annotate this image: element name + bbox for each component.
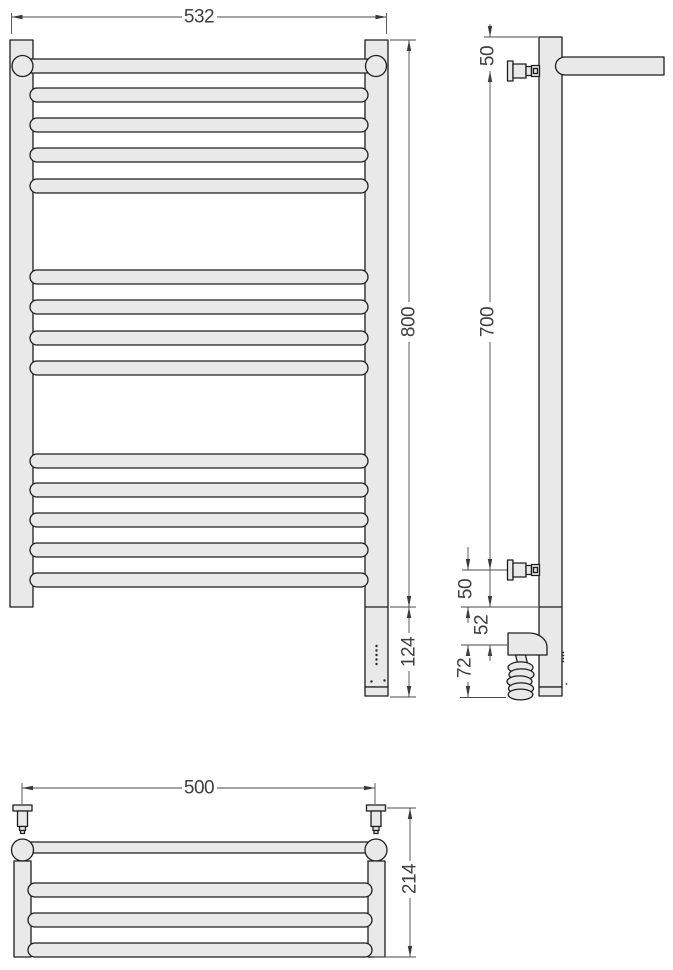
side-top-shelf-bar bbox=[556, 57, 664, 75]
bracket-wall-plate bbox=[508, 61, 514, 81]
heating-element-box bbox=[508, 633, 547, 655]
bracket-collar bbox=[532, 565, 540, 576]
arrowhead bbox=[22, 786, 33, 790]
top-tube bbox=[28, 883, 372, 897]
dim-label-heater-section: 124 bbox=[399, 636, 420, 667]
bracket-collar bbox=[532, 66, 540, 77]
arrowhead bbox=[488, 559, 492, 570]
arrowhead bbox=[408, 808, 412, 819]
front-view: 532 800 124 bbox=[10, 7, 420, 698]
side-post bbox=[539, 37, 562, 687]
top-right-post bbox=[368, 861, 385, 957]
front-right-post bbox=[365, 40, 388, 687]
front-top-bend-left bbox=[12, 56, 33, 77]
indicator-dot bbox=[383, 679, 385, 681]
dim-label-coupling: 52 bbox=[472, 615, 493, 635]
arrowhead bbox=[466, 559, 470, 570]
indicator-dot bbox=[562, 652, 564, 654]
dim-side-bottom-offset: 50 bbox=[456, 547, 539, 623]
top-bend-right bbox=[365, 839, 387, 861]
rung bbox=[30, 300, 368, 314]
arrowhead bbox=[466, 686, 470, 697]
dim-label-bracket-span: 700 bbox=[478, 307, 499, 337]
dim-front-width: 532 bbox=[12, 7, 387, 35]
rung bbox=[30, 331, 368, 345]
front-heater-end-cap bbox=[365, 687, 388, 696]
indicator-dot bbox=[375, 654, 377, 656]
indicator-dot bbox=[375, 649, 377, 651]
bracket-wall-plate bbox=[508, 560, 514, 580]
bracket-body bbox=[371, 811, 381, 827]
indicator-dot bbox=[562, 655, 564, 657]
indicator-dot bbox=[375, 663, 377, 665]
dim-label-heater-protrusion: 72 bbox=[455, 658, 476, 678]
dim-front-height: 800 bbox=[390, 40, 420, 607]
indicator-dot bbox=[370, 680, 372, 682]
rung bbox=[30, 513, 368, 527]
bracket-wall-plate bbox=[13, 805, 32, 811]
top-bend-left bbox=[12, 839, 34, 861]
arrowhead bbox=[407, 607, 411, 618]
arrowhead bbox=[407, 40, 411, 51]
towel-rail-drawing: 532 800 124 bbox=[0, 0, 673, 970]
wall-bracket-top bbox=[508, 61, 540, 81]
rung bbox=[30, 88, 368, 102]
dim-side-heater-protrusion: 72 bbox=[455, 645, 507, 698]
dim-label-height: 800 bbox=[399, 307, 420, 337]
spiral-cable bbox=[507, 662, 534, 700]
arrowhead bbox=[407, 686, 411, 697]
technical-drawing: 532 800 124 bbox=[0, 0, 673, 970]
dim-label-bottom-offset: 50 bbox=[456, 579, 477, 599]
dim-label-width: 532 bbox=[184, 7, 214, 28]
bracket-stem bbox=[374, 831, 378, 834]
indicator-dot bbox=[562, 658, 564, 660]
indicator-dot bbox=[566, 683, 568, 685]
cable-coil-loop bbox=[508, 689, 533, 700]
rung bbox=[30, 483, 368, 497]
arrowhead bbox=[408, 946, 412, 957]
dim-label-top-width: 500 bbox=[184, 778, 214, 799]
bracket-body bbox=[513, 563, 526, 577]
dim-side-top-offset: 50 bbox=[478, 24, 539, 66]
top-left-post bbox=[14, 861, 31, 957]
top-tube bbox=[28, 913, 372, 927]
rung bbox=[30, 118, 368, 132]
rung bbox=[30, 148, 368, 162]
arrowhead bbox=[407, 596, 411, 607]
side-indicator-dots bbox=[562, 652, 567, 685]
front-top-bend-right bbox=[366, 56, 387, 77]
top-bracket-left bbox=[13, 805, 32, 834]
bracket-body bbox=[18, 811, 28, 827]
top-tube bbox=[28, 943, 372, 957]
rung bbox=[30, 573, 368, 587]
dim-top-width: 500 bbox=[22, 778, 375, 805]
wall-bracket-bottom bbox=[508, 560, 540, 580]
dim-front-heater-section: 124 bbox=[390, 607, 420, 697]
arrowhead bbox=[12, 15, 23, 19]
indicator-dot bbox=[375, 645, 377, 647]
bracket-stem bbox=[21, 831, 25, 834]
dim-side-bracket-span: 700 bbox=[462, 71, 507, 607]
bracket-body bbox=[513, 64, 526, 78]
front-top-shelf-bar bbox=[22, 59, 376, 73]
arrowhead bbox=[488, 596, 492, 607]
bracket-step bbox=[526, 67, 532, 76]
arrowhead bbox=[364, 786, 375, 790]
dim-label-top-depth: 214 bbox=[400, 863, 421, 894]
side-heater-end-cap bbox=[539, 687, 562, 696]
rung bbox=[30, 543, 368, 557]
rung bbox=[30, 179, 368, 193]
top-bracket-right bbox=[367, 805, 386, 834]
side-view: 50 700 50 52 bbox=[455, 24, 665, 700]
bracket-step bbox=[526, 566, 532, 575]
indicator-dot bbox=[562, 661, 564, 663]
arrowhead bbox=[376, 15, 387, 19]
top-view: 500 214 bbox=[12, 778, 421, 958]
dim-label-top-offset: 50 bbox=[478, 46, 499, 66]
arrowhead bbox=[488, 26, 492, 37]
bracket-wall-plate bbox=[367, 805, 386, 811]
rung bbox=[30, 454, 368, 468]
top-front-shelf-tube bbox=[23, 842, 377, 853]
indicator-dot bbox=[375, 658, 377, 660]
rung bbox=[30, 361, 368, 375]
rung bbox=[30, 270, 368, 284]
